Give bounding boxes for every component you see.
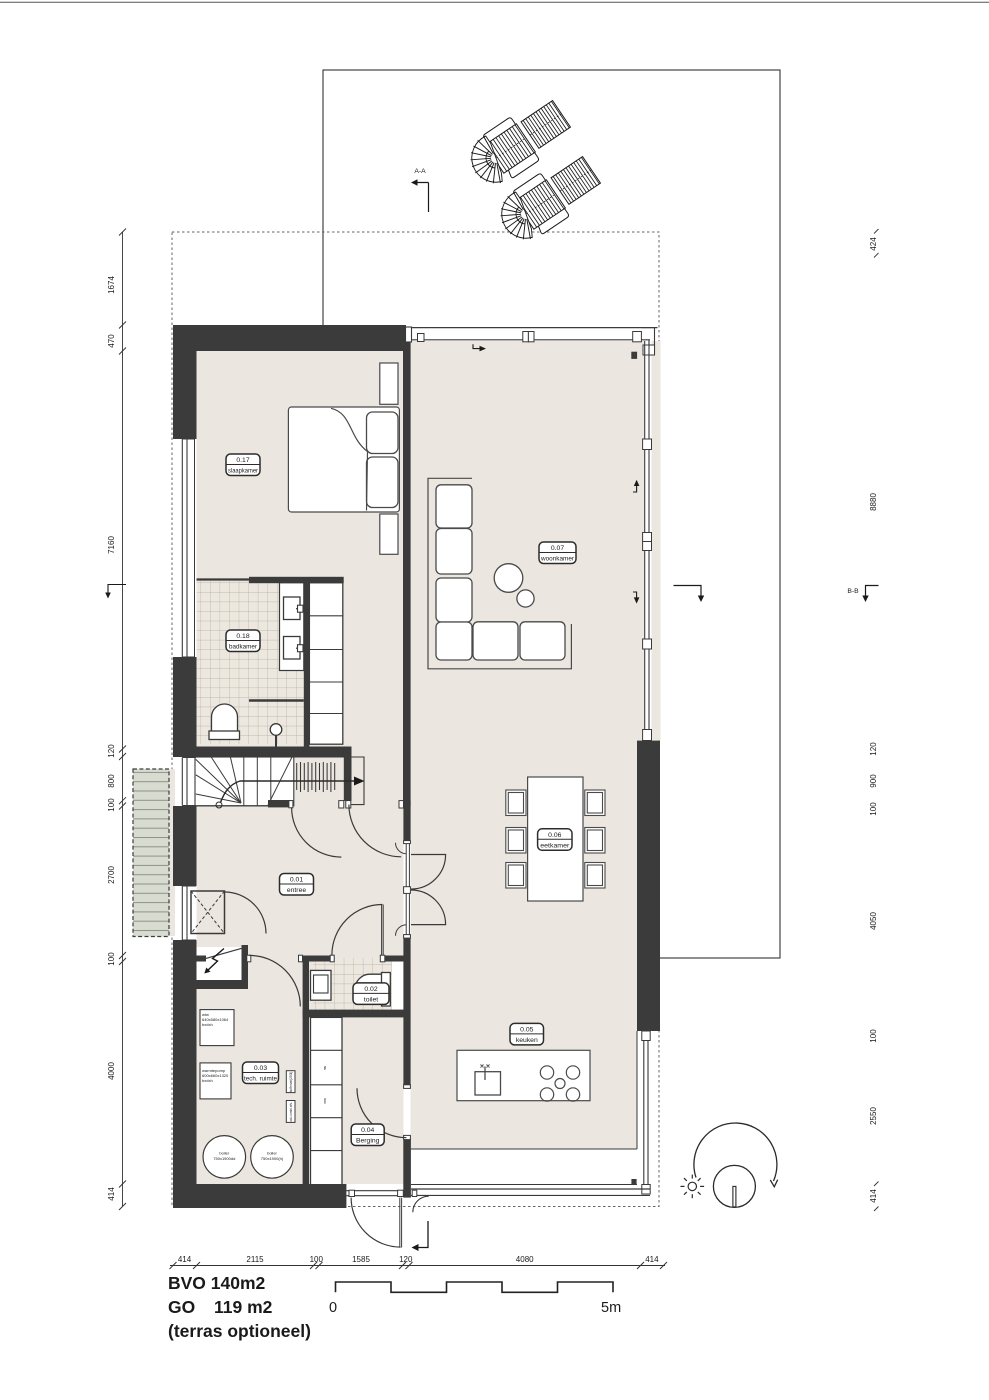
svg-text:414: 414 — [869, 1189, 878, 1203]
svg-text:toilet: toilet — [364, 996, 378, 1003]
svg-text:120: 120 — [869, 742, 878, 756]
svg-text:Berging: Berging — [356, 1138, 380, 1145]
svg-text:0.04: 0.04 — [361, 1127, 374, 1134]
svg-text:100: 100 — [869, 802, 878, 816]
svg-text:badkamer: badkamer — [229, 644, 258, 651]
svg-text:(terras optioneel): (terras optioneel) — [168, 1321, 311, 1341]
svg-text:120: 120 — [107, 744, 116, 758]
svg-text:GO: GO — [168, 1297, 195, 1317]
svg-text:900: 900 — [869, 774, 878, 788]
svg-text:100: 100 — [107, 952, 116, 966]
svg-text:entree: entree — [287, 887, 306, 894]
svg-text:414: 414 — [107, 1187, 116, 1201]
svg-text:BVO 140m2: BVO 140m2 — [168, 1273, 266, 1293]
svg-text:mv: mv — [323, 1065, 327, 1070]
svg-text:1585: 1585 — [352, 1255, 370, 1264]
svg-text:slaapkamer: slaapkamer — [228, 468, 259, 475]
svg-text:7160: 7160 — [107, 536, 116, 554]
svg-text:100: 100 — [310, 1255, 324, 1264]
svg-text:woonkamer: woonkamer — [540, 556, 575, 563]
svg-text:0.01: 0.01 — [290, 877, 303, 884]
svg-text:0.07: 0.07 — [551, 545, 564, 552]
svg-text:wd-combi afv.: wd-combi afv. — [289, 1102, 293, 1122]
svg-text:boiler: boiler — [267, 1151, 277, 1156]
svg-text:414: 414 — [645, 1255, 659, 1264]
svg-text:800: 800 — [107, 774, 116, 788]
svg-text:750x1900dd: 750x1900dd — [213, 1156, 235, 1161]
svg-text:100: 100 — [869, 1029, 878, 1043]
svg-text:470: 470 — [107, 334, 116, 348]
svg-text:4080: 4080 — [516, 1255, 534, 1264]
svg-text:120: 120 — [399, 1255, 413, 1264]
svg-text:0.02: 0.02 — [364, 986, 377, 993]
svg-text:424: 424 — [869, 237, 878, 251]
svg-text:5m: 5m — [601, 1300, 621, 1316]
svg-text:bxdxh: bxdxh — [202, 1022, 213, 1027]
svg-text:0.03: 0.03 — [254, 1065, 267, 1072]
svg-text:wm: wm — [323, 1098, 327, 1103]
svg-text:8880: 8880 — [869, 493, 878, 511]
svg-text:B-B: B-B — [847, 588, 859, 595]
svg-text:0.05: 0.05 — [520, 1026, 533, 1033]
svg-text:0: 0 — [329, 1300, 337, 1316]
svg-text:100: 100 — [107, 798, 116, 812]
svg-text:750x1900(h): 750x1900(h) — [261, 1156, 284, 1161]
svg-text:2115: 2115 — [246, 1255, 264, 1264]
svg-text:414: 414 — [178, 1255, 192, 1264]
svg-text:A-A: A-A — [414, 168, 426, 175]
svg-text:eetkamer: eetkamer — [540, 842, 570, 849]
svg-text:4000: 4000 — [107, 1062, 116, 1080]
svg-text:2700: 2700 — [107, 866, 116, 884]
svg-text:0.18: 0.18 — [236, 633, 249, 640]
svg-text:boiler: boiler — [219, 1151, 229, 1156]
svg-text:4050: 4050 — [869, 912, 878, 930]
svg-text:2550: 2550 — [869, 1107, 878, 1125]
svg-text:0.17: 0.17 — [236, 457, 249, 464]
svg-text:bxdxh: bxdxh — [202, 1078, 213, 1083]
svg-text:buffervat(250l): buffervat(250l) — [289, 1072, 293, 1093]
svg-text:tech. ruimte: tech. ruimte — [244, 1076, 277, 1083]
svg-text:0.06: 0.06 — [548, 832, 561, 839]
svg-text:1674: 1674 — [107, 276, 116, 294]
svg-text:119 m2: 119 m2 — [214, 1297, 273, 1317]
svg-text:keuken: keuken — [516, 1037, 538, 1044]
